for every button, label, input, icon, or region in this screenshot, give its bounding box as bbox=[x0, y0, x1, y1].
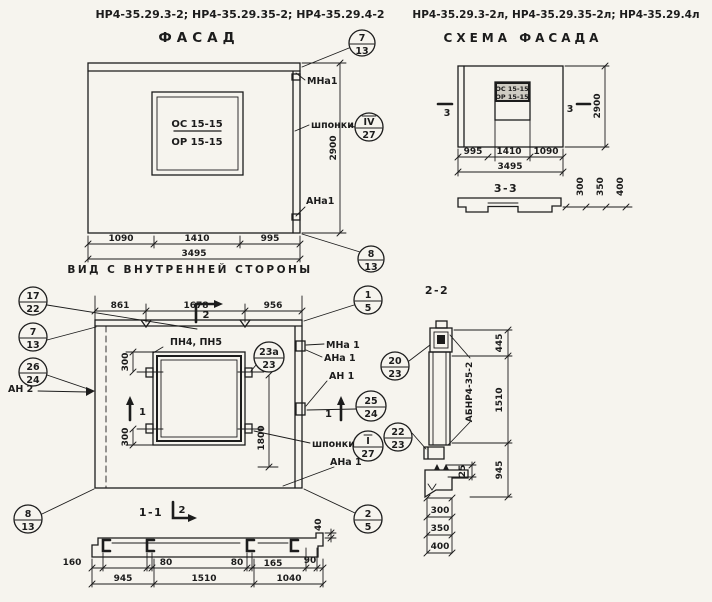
svg-text:945: 945 bbox=[114, 574, 133, 584]
scheme-dimensions: 995 1410 1090 3495 2900 bbox=[455, 63, 609, 176]
label-an1-inner: АН 1 bbox=[329, 371, 354, 382]
drawing-sheet: НР4-35.29.3-2; НР4-35.29.35-2; НР4-35.29… bbox=[0, 0, 712, 602]
svg-text:1090: 1090 bbox=[533, 147, 558, 157]
callout-25-24: 25 24 bbox=[307, 391, 386, 421]
svg-text:350: 350 bbox=[596, 177, 606, 196]
svg-text:22: 22 bbox=[26, 304, 39, 315]
callout-7-13-facade: 7 13 bbox=[302, 30, 375, 67]
svg-text:8: 8 bbox=[368, 249, 375, 260]
svg-text:1410: 1410 bbox=[496, 147, 521, 157]
svg-text:2: 2 bbox=[365, 509, 372, 520]
callout-20-23: 20 23 bbox=[381, 345, 430, 380]
svg-text:956: 956 bbox=[264, 301, 283, 311]
svg-text:80: 80 bbox=[160, 558, 173, 568]
label-shponki-inner: шпонки bbox=[312, 439, 355, 450]
label-ana1-inner: АНа 1 bbox=[324, 353, 356, 364]
svg-text:1800: 1800 bbox=[257, 425, 267, 450]
svg-text:300: 300 bbox=[121, 428, 131, 447]
svg-text:25: 25 bbox=[458, 465, 468, 478]
section-1-1-dimensions: 160 80 80 165 90 945 1510 1040 40 bbox=[63, 518, 336, 587]
facade-subtitle: ВИД С ВНУТРЕННЕЙ СТОРОНЫ bbox=[67, 263, 312, 276]
svg-text:24: 24 bbox=[26, 375, 40, 386]
label-mna1-inner: МНа 1 bbox=[326, 340, 360, 351]
svg-text:350: 350 bbox=[431, 524, 450, 534]
facade-dimensions-bottom: 1090 1410 995 3495 bbox=[85, 234, 303, 262]
svg-text:1: 1 bbox=[365, 290, 372, 301]
facade-window-mark-bottom: ОР 15-15 bbox=[171, 137, 222, 148]
svg-text:22: 22 bbox=[391, 427, 404, 438]
inner-view-drawing: 861 1678 956 2 ПН4, ПН5 bbox=[8, 286, 386, 533]
svg-text:IV: IV bbox=[364, 117, 376, 128]
svg-text:2900: 2900 bbox=[593, 93, 603, 118]
svg-text:13: 13 bbox=[364, 262, 377, 273]
section-1-marks: 1 1 bbox=[126, 396, 345, 420]
svg-text:ПН4, ПН5: ПН4, ПН5 bbox=[170, 337, 222, 348]
callout-17-22: 17 22 bbox=[19, 287, 197, 329]
svg-text:945: 945 bbox=[495, 461, 505, 480]
scheme-window-mark-bottom: ОР 15-15 bbox=[495, 93, 529, 101]
facade-drawing: НР4-35.29.3-2; НР4-35.29.35-2; НР4-35.29… bbox=[67, 8, 384, 276]
callout-26-24: 26 24 bbox=[19, 358, 47, 386]
inner-dim-1800: 1800 bbox=[257, 372, 278, 470]
label-ana1: АНа1 bbox=[306, 196, 334, 207]
svg-text:861: 861 bbox=[111, 301, 130, 311]
svg-text:400: 400 bbox=[431, 542, 450, 552]
section-1-1-label: 1-1 bbox=[139, 506, 163, 519]
section-2-2-label: 2-2 bbox=[425, 284, 449, 297]
section-1-1: 1-1 2 160 80 80 165 90 945 1510 104 bbox=[63, 502, 336, 587]
dim-995: 995 bbox=[261, 234, 280, 244]
facade-panel: ОС 15-15 ОР 15-15 bbox=[88, 63, 300, 233]
svg-text:40: 40 bbox=[314, 518, 324, 531]
dim-1410: 1410 bbox=[184, 234, 209, 244]
inner-window-label: ПН4, ПН5 bbox=[153, 337, 222, 353]
callout-7-13-inner: 7 13 bbox=[19, 323, 96, 351]
svg-text:25: 25 bbox=[364, 396, 377, 407]
section-1-1-profile bbox=[92, 533, 323, 557]
svg-text:5: 5 bbox=[365, 303, 372, 314]
svg-text:13: 13 bbox=[26, 340, 39, 351]
svg-text:300: 300 bbox=[576, 177, 586, 196]
svg-text:20: 20 bbox=[388, 356, 402, 367]
facade-title: ФАСАД bbox=[158, 30, 239, 46]
svg-text:995: 995 bbox=[464, 147, 483, 157]
callout-IV-27-facade: IV 27 bbox=[355, 113, 383, 141]
section-2-mark-bottom: 2 bbox=[173, 502, 197, 522]
svg-text:17: 17 bbox=[26, 291, 39, 302]
scheme-panel: ОС 15-15 ОР 15-15 bbox=[458, 66, 563, 147]
section-mark-3-right: 3 bbox=[567, 104, 574, 115]
facade-annotations: МНа1 шпонки АНа1 bbox=[295, 73, 355, 216]
scheme-section-marks: 3 3 bbox=[438, 104, 590, 119]
svg-text:400: 400 bbox=[616, 177, 626, 196]
svg-text:7: 7 bbox=[359, 33, 366, 44]
scheme-title: СХЕМА ФАСАДА bbox=[444, 31, 603, 45]
svg-text:23: 23 bbox=[388, 369, 401, 380]
callout-8-13-inner: 8 13 bbox=[14, 489, 94, 533]
svg-text:1510: 1510 bbox=[191, 574, 216, 584]
svg-text:23а: 23а bbox=[259, 347, 279, 358]
svg-text:300: 300 bbox=[121, 353, 131, 372]
dim-3495: 3495 bbox=[181, 249, 206, 259]
facade-header: НР4-35.29.3-2; НР4-35.29.35-2; НР4-35.29… bbox=[95, 8, 384, 21]
svg-text:13: 13 bbox=[355, 46, 368, 57]
svg-text:7: 7 bbox=[30, 327, 37, 338]
svg-text:1040: 1040 bbox=[276, 574, 301, 584]
svg-text:13: 13 bbox=[21, 522, 34, 533]
callout-22-23: 22 23 bbox=[384, 423, 426, 451]
section-mark-1-left: 1 bbox=[139, 407, 146, 418]
svg-text:165: 165 bbox=[264, 559, 283, 569]
section-3-3-label: 3-3 bbox=[494, 182, 518, 195]
dim-2900: 2900 bbox=[329, 135, 339, 160]
svg-text:23: 23 bbox=[262, 360, 275, 371]
label-mna1: МНа1 bbox=[307, 76, 337, 87]
inner-dim-300-top: 300 bbox=[121, 349, 153, 375]
blueprint-svg: НР4-35.29.3-2; НР4-35.29.35-2; НР4-35.29… bbox=[0, 0, 712, 602]
svg-text:27: 27 bbox=[361, 449, 374, 460]
svg-text:445: 445 bbox=[495, 334, 505, 353]
section-2-2-dimensions: 445 1510 945 25 bbox=[446, 327, 512, 500]
svg-text:26: 26 bbox=[26, 362, 40, 373]
label-ana1-inner-2: АНа 1 bbox=[330, 457, 362, 468]
facade-scheme-drawing: НР4-35.29.3-2л, НР4-35.29.35-2л; НР4-35.… bbox=[412, 9, 699, 212]
section-2-2: 2-2 АБНР4-35-2 445 1510 945 25 bbox=[381, 284, 512, 556]
callout-23a-23: 23а 23 bbox=[251, 342, 284, 372]
scheme-window-mark-top: ОС 15-15 bbox=[495, 85, 529, 93]
svg-text:8: 8 bbox=[25, 509, 32, 520]
svg-text:80: 80 bbox=[231, 558, 244, 568]
section-mark-1-right: 1 bbox=[325, 409, 332, 420]
svg-text:I: I bbox=[366, 436, 370, 447]
svg-text:5: 5 bbox=[365, 522, 372, 533]
section-3-3: 3-3 300 350 400 bbox=[458, 177, 632, 212]
section-2-2-ladder-dims: 300 350 400 bbox=[424, 495, 455, 556]
svg-text:АБНР4-35-2: АБНР4-35-2 bbox=[465, 362, 475, 422]
facade-window-mark-top: ОС 15-15 bbox=[171, 119, 222, 130]
label-shponki: шпонки bbox=[311, 120, 354, 131]
inner-dimensions-top: 861 1678 956 bbox=[92, 296, 305, 322]
callout-1-5: 1 5 bbox=[304, 286, 382, 321]
dim-1090: 1090 bbox=[108, 234, 133, 244]
svg-text:2: 2 bbox=[179, 505, 186, 516]
callout-I-27: I 27 bbox=[353, 431, 383, 461]
svg-text:23: 23 bbox=[391, 440, 404, 451]
svg-text:90: 90 bbox=[304, 556, 317, 566]
callout-8-13-facade: 8 13 bbox=[302, 234, 384, 273]
svg-text:3495: 3495 bbox=[497, 162, 522, 172]
scheme-header: НР4-35.29.3-2л, НР4-35.29.35-2л; НР4-35.… bbox=[412, 9, 699, 21]
section-mark-3-left: 3 bbox=[444, 108, 451, 119]
svg-text:160: 160 bbox=[63, 558, 82, 568]
svg-text:27: 27 bbox=[362, 130, 375, 141]
svg-text:1510: 1510 bbox=[495, 387, 505, 412]
svg-text:300: 300 bbox=[431, 506, 450, 516]
svg-text:24: 24 bbox=[364, 409, 378, 420]
